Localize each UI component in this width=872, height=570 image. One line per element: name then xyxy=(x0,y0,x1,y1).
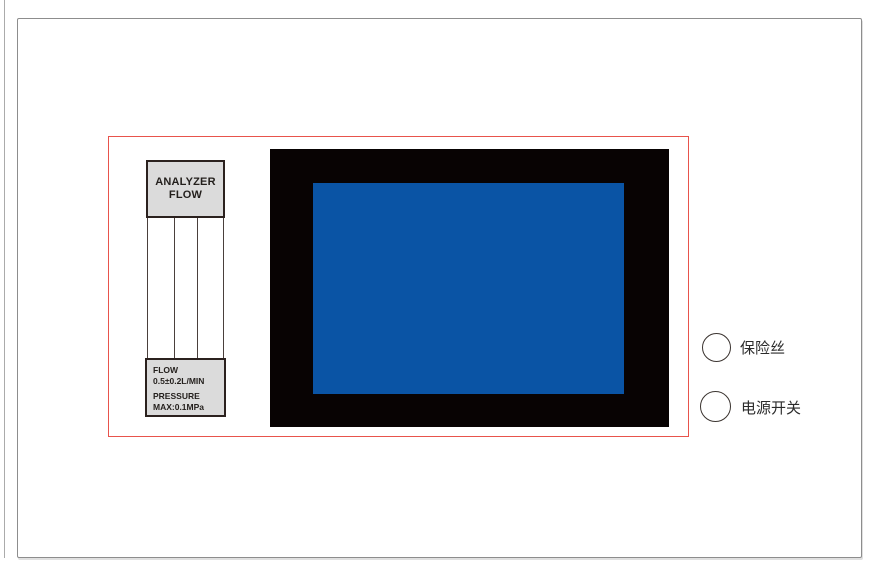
analyzer-flow-label: ANALYZER FLOW xyxy=(146,160,225,218)
power-switch-label: 电源开关 xyxy=(741,400,801,417)
analyzer-label-line2: FLOW xyxy=(169,189,202,202)
flow-spec-label: FLOW 0.5±0.2L/MIN PRESSURE MAX:0.1MPa xyxy=(145,358,226,417)
fuse-label: 保险丝 xyxy=(740,340,785,357)
flowmeter-tube xyxy=(147,218,224,358)
display-bezel xyxy=(270,149,669,427)
flow-spec-line3: PRESSURE xyxy=(153,391,222,402)
page-edge-line xyxy=(4,0,5,558)
display-screen xyxy=(313,183,624,394)
flow-spec-line2: 0.5±0.2L/MIN xyxy=(153,376,222,387)
flow-spec-line1: FLOW xyxy=(153,365,222,376)
analyzer-label-line1: ANALYZER xyxy=(155,176,215,189)
fuse-circle xyxy=(702,333,731,362)
flow-spec-line4: MAX:0.1MPa xyxy=(153,402,222,413)
drawing-canvas: ANALYZER FLOW FLOW 0.5±0.2L/MIN PRESSURE… xyxy=(0,0,872,570)
power-switch-circle xyxy=(700,391,731,422)
flowmeter-tube-inner-line xyxy=(174,218,175,358)
flowmeter-tube-inner-line xyxy=(197,218,198,358)
